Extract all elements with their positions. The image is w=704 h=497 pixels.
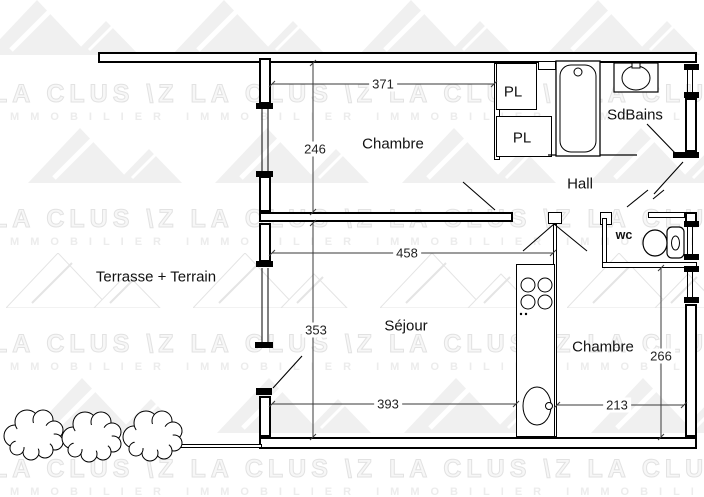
room-label-sdbains: SdBains — [607, 107, 663, 124]
dimension-label-353: 353 — [302, 323, 330, 338]
room-label-chambre-1: Chambre — [362, 136, 424, 153]
room-label-terrasse: Terrasse + Terrain — [96, 269, 216, 286]
room-label-hall: Hall — [567, 176, 593, 193]
labels-layer: Chambre Chambre Séjour Hall SdBains wc P… — [0, 0, 704, 497]
room-label-pl2: PL — [513, 130, 531, 147]
room-label-chambre-2: Chambre — [572, 339, 634, 356]
room-label-wc: wc — [616, 228, 633, 242]
room-label-pl1: PL — [504, 84, 522, 101]
dimension-label-371: 371 — [369, 77, 397, 92]
dimension-label-458: 458 — [393, 246, 421, 261]
dimension-label-213: 213 — [603, 398, 631, 413]
dimension-label-266: 266 — [647, 349, 675, 364]
room-label-sejour: Séjour — [384, 318, 427, 335]
dimension-label-393: 393 — [374, 397, 402, 412]
dimension-label-246: 246 — [301, 142, 329, 157]
floor-plan-canvas: LA CLUS \Z LA CLUS \Z LA CLUS \Z LA CLUS… — [0, 0, 704, 497]
